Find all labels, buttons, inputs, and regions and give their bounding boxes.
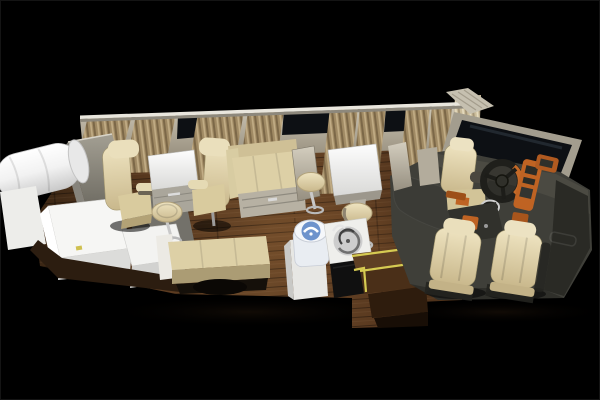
render-canvas — [0, 0, 600, 400]
steering-wheel — [484, 163, 521, 200]
wall-pillar — [417, 147, 440, 186]
bus-interior-render — [0, 0, 600, 400]
wheel-arch — [193, 279, 247, 295]
